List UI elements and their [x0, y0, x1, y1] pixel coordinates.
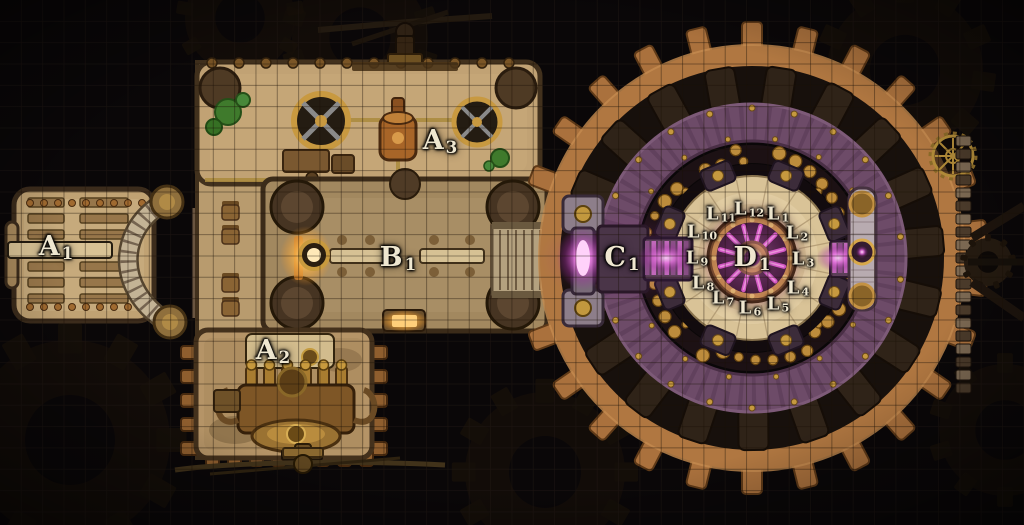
vignette [0, 0, 1024, 525]
battle-map-canvas [0, 0, 1024, 525]
map-root: A1A2A3B1C1D1L1L2L3L4L5L6L7L8L9L10L11L12 [0, 0, 1024, 525]
